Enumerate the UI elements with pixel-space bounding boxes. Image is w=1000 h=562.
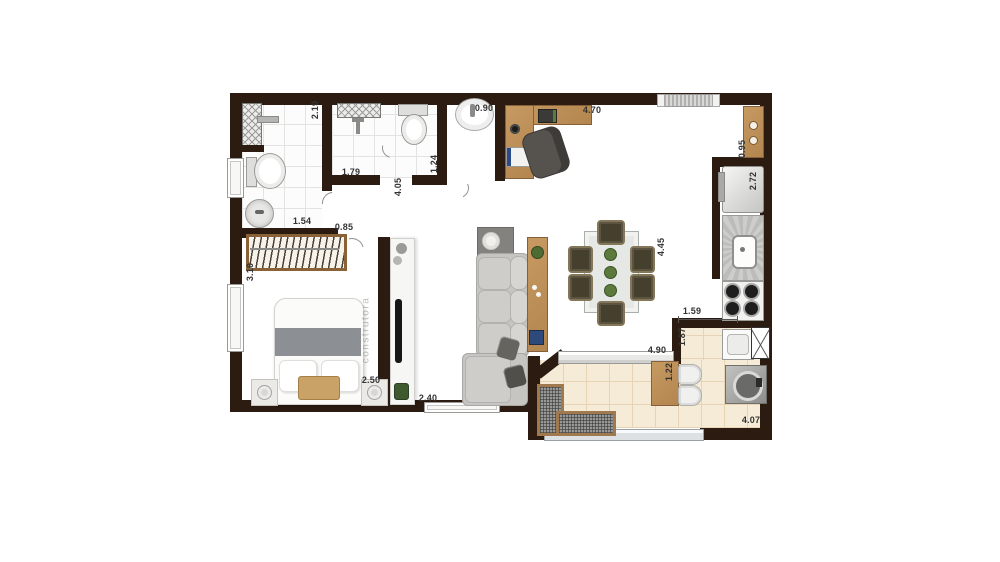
dimension-label: 2.72 [748,172,758,190]
cabinet-knob-icon [749,121,758,130]
dimension-label: 1.54 [293,216,311,226]
fridge-handle [718,172,725,202]
plate-icon [604,266,617,279]
dining-chair [630,246,655,273]
balcony-chair [678,364,702,385]
dimension-label: 2.40 [419,393,437,403]
sink-drain-icon [740,247,745,252]
dimension-label: 2.19 [310,101,320,119]
decor-vase-icon [482,232,500,250]
dimension-line [678,319,738,320]
dining-chair [597,220,625,245]
dimension-label: 0.95 [737,140,747,158]
sofa-seat-cushion [478,290,511,323]
dimension-label: 2.50 [362,375,380,385]
candle-icon [532,285,537,290]
shower-head-icon [356,120,360,134]
dimension-label: 1.59 [683,306,701,316]
plant-icon [394,383,409,400]
dimension-label: 4.70 [583,105,601,115]
toilet-icon [254,153,286,189]
bedroom-window [227,284,244,352]
bathroom-window [227,158,244,198]
lamp-icon [367,385,382,400]
decor-bowl-icon [396,243,407,254]
dimension-label: 0.90 [475,103,493,113]
floor-plan: construtora [0,0,1000,562]
grill-bench-horizontal [556,411,616,436]
candle-icon [536,292,541,297]
bed-throw-cushion [298,376,340,400]
entry-door-mat [663,94,714,107]
stove-burner [726,302,739,315]
dimension-label: 1.79 [342,167,360,177]
laundry-sink-basin [727,334,749,355]
washer-control [756,378,762,387]
wall-left [230,93,242,412]
desk-cup-icon [510,124,520,134]
duct-shaft-icon [751,327,770,359]
shower-head-top [352,118,364,122]
wall-balcony-bottom [700,428,772,440]
dimension-label: 1.87 [677,328,687,346]
wall-office-nook [495,103,505,181]
watermark-text: construtora [361,297,372,364]
shower-stub-wall [242,145,264,152]
dining-chair [597,301,625,326]
dimension-label: 1.22 [664,363,674,381]
wall-bathroom2-bottom-right [412,175,447,185]
shower-screen-icon [242,103,262,149]
wardrobe-hangers-icon [246,234,347,271]
sofa-back-cushion [510,256,528,290]
dimension-label: 3.10 [245,263,255,281]
sofa-back-cushion [510,290,528,324]
sofa-seat-cushion [478,257,511,290]
plate-icon [604,248,617,261]
stove-burner [745,302,758,315]
towel-bar-icon [257,116,279,123]
stove-burner [726,285,739,298]
kitchen-sink-icon [732,235,757,269]
entry-door-jamb-right [712,94,720,107]
dining-chair [568,274,593,301]
dimension-label: 0.85 [335,222,353,232]
toilet2-icon [401,114,427,145]
dimension-label: 4.07 [742,415,760,425]
lamp-icon [257,385,272,400]
sink-faucet-icon [255,210,264,214]
dimension-label: 1.24 [429,155,439,173]
stove-burner [745,285,758,298]
wardrobe-rail [250,248,339,250]
dimension-label: 4.90 [648,345,666,355]
entry-door-jamb-left [657,94,665,107]
dimension-label: 4.45 [656,238,666,256]
plant-icon [531,246,544,259]
desk-frame-icon [538,109,557,123]
dining-chair [630,274,655,301]
plate-icon [604,284,617,297]
wall-bathroom-divider [322,103,332,191]
dining-chair [568,246,593,273]
bed-blanket [275,328,361,356]
books-icon [529,330,544,345]
decor-bowl-icon [393,256,402,265]
balcony-chair [678,385,702,406]
shower-screen2-icon [337,103,381,118]
tv-icon [395,299,402,363]
sofa-chaise-cushion [465,356,511,403]
cabinet-knob-icon [749,136,758,145]
dimension-label: 4.05 [393,178,403,196]
